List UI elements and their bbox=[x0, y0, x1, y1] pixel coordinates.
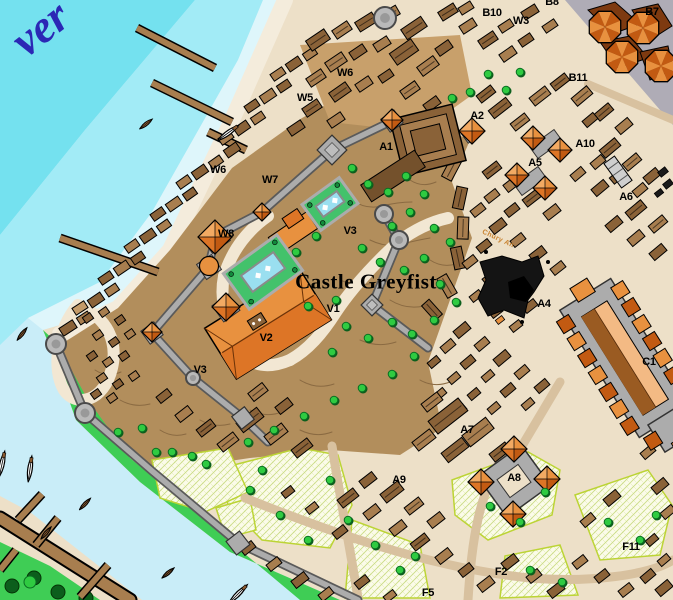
map-artwork bbox=[0, 0, 673, 600]
city-map-castle-greyfist: B8B10W3B7B11W6W5W6W7W8A1A2A10A5A6A4V3V1V… bbox=[0, 0, 673, 600]
